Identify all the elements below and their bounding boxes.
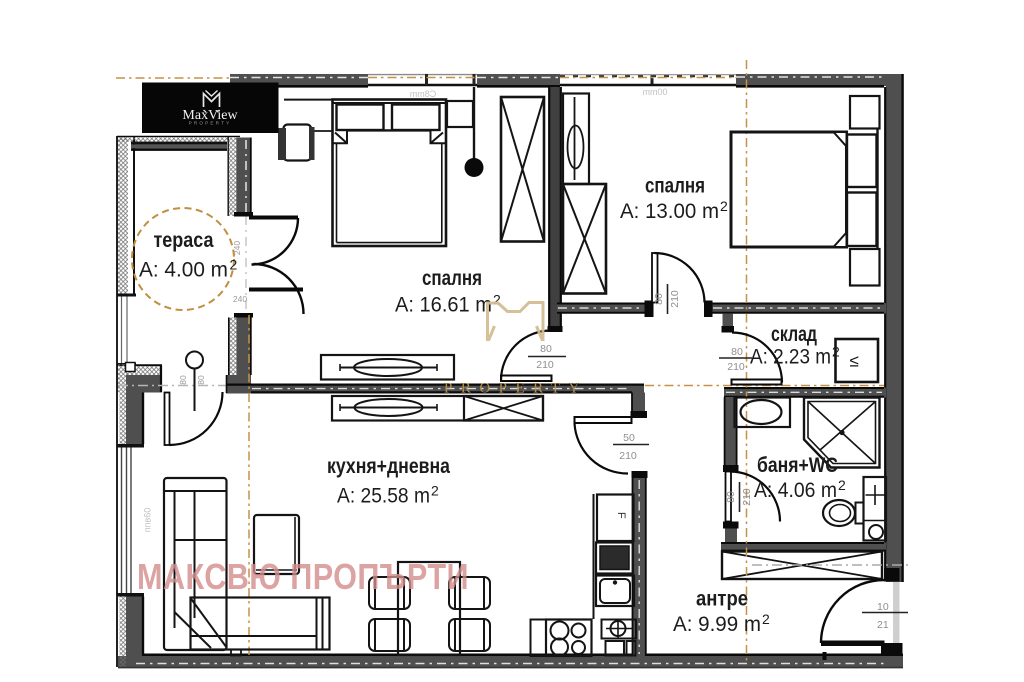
svg-text:F: F xyxy=(615,512,627,519)
svg-text:A: 4.00 m: A: 4.00 m xyxy=(139,258,228,282)
svg-text:PROPERTY: PROPERTY xyxy=(444,381,588,397)
svg-text:A: 4.06 m: A: 4.06 m xyxy=(754,478,837,502)
svg-text:2: 2 xyxy=(431,483,439,499)
svg-text:≤: ≤ xyxy=(850,352,859,371)
svg-text:антре: антре xyxy=(696,588,748,611)
svg-text:240: 240 xyxy=(233,294,247,304)
svg-text:C8mm: C8mm xyxy=(410,89,437,99)
svg-text:21: 21 xyxy=(877,619,889,631)
svg-text:A: 16.61 m: A: 16.61 m xyxy=(395,293,492,317)
svg-text:00mm: 00mm xyxy=(642,87,667,97)
svg-text:ппв60: ппв60 xyxy=(143,508,153,533)
svg-text:A: 13.00 m: A: 13.00 m xyxy=(620,199,719,223)
svg-text:спалня: спалня xyxy=(422,267,482,290)
svg-text:кухня+дневна: кухня+дневна xyxy=(327,455,450,478)
svg-text:A: 25.58 m: A: 25.58 m xyxy=(337,484,430,508)
svg-text:80: 80 xyxy=(540,343,552,355)
svg-text:спалня: спалня xyxy=(645,175,705,198)
svg-text:2: 2 xyxy=(230,257,238,273)
svg-text:80: 80 xyxy=(725,491,737,503)
svg-text:80: 80 xyxy=(653,293,665,305)
svg-text:2: 2 xyxy=(832,344,840,360)
svg-text:210: 210 xyxy=(536,359,554,371)
svg-text:2: 2 xyxy=(838,477,846,493)
svg-text:210: 210 xyxy=(669,290,681,308)
svg-text:80: 80 xyxy=(196,375,206,385)
svg-text:210: 210 xyxy=(619,450,637,462)
svg-text:210: 210 xyxy=(727,361,745,373)
svg-text:50: 50 xyxy=(623,432,635,444)
svg-text:A: 2.23 m: A: 2.23 m xyxy=(750,345,831,369)
svg-text:тераса: тераса xyxy=(154,229,214,252)
svg-text:2: 2 xyxy=(762,611,770,627)
svg-text:80: 80 xyxy=(178,375,188,385)
svg-text:склад: склад xyxy=(771,323,817,346)
svg-text:PROPERTY: PROPERTY xyxy=(189,121,232,126)
svg-text:210: 210 xyxy=(741,488,753,506)
svg-text:10: 10 xyxy=(877,601,889,613)
svg-text:A: 9.99 m: A: 9.99 m xyxy=(673,612,761,636)
svg-text:2: 2 xyxy=(720,198,728,214)
svg-text:баня+WC: баня+WC xyxy=(757,454,838,477)
svg-text:80: 80 xyxy=(731,346,743,358)
svg-text:МАКСВЮ ПРОПЪРТИ: МАКСВЮ ПРОПЪРТИ xyxy=(137,557,469,598)
